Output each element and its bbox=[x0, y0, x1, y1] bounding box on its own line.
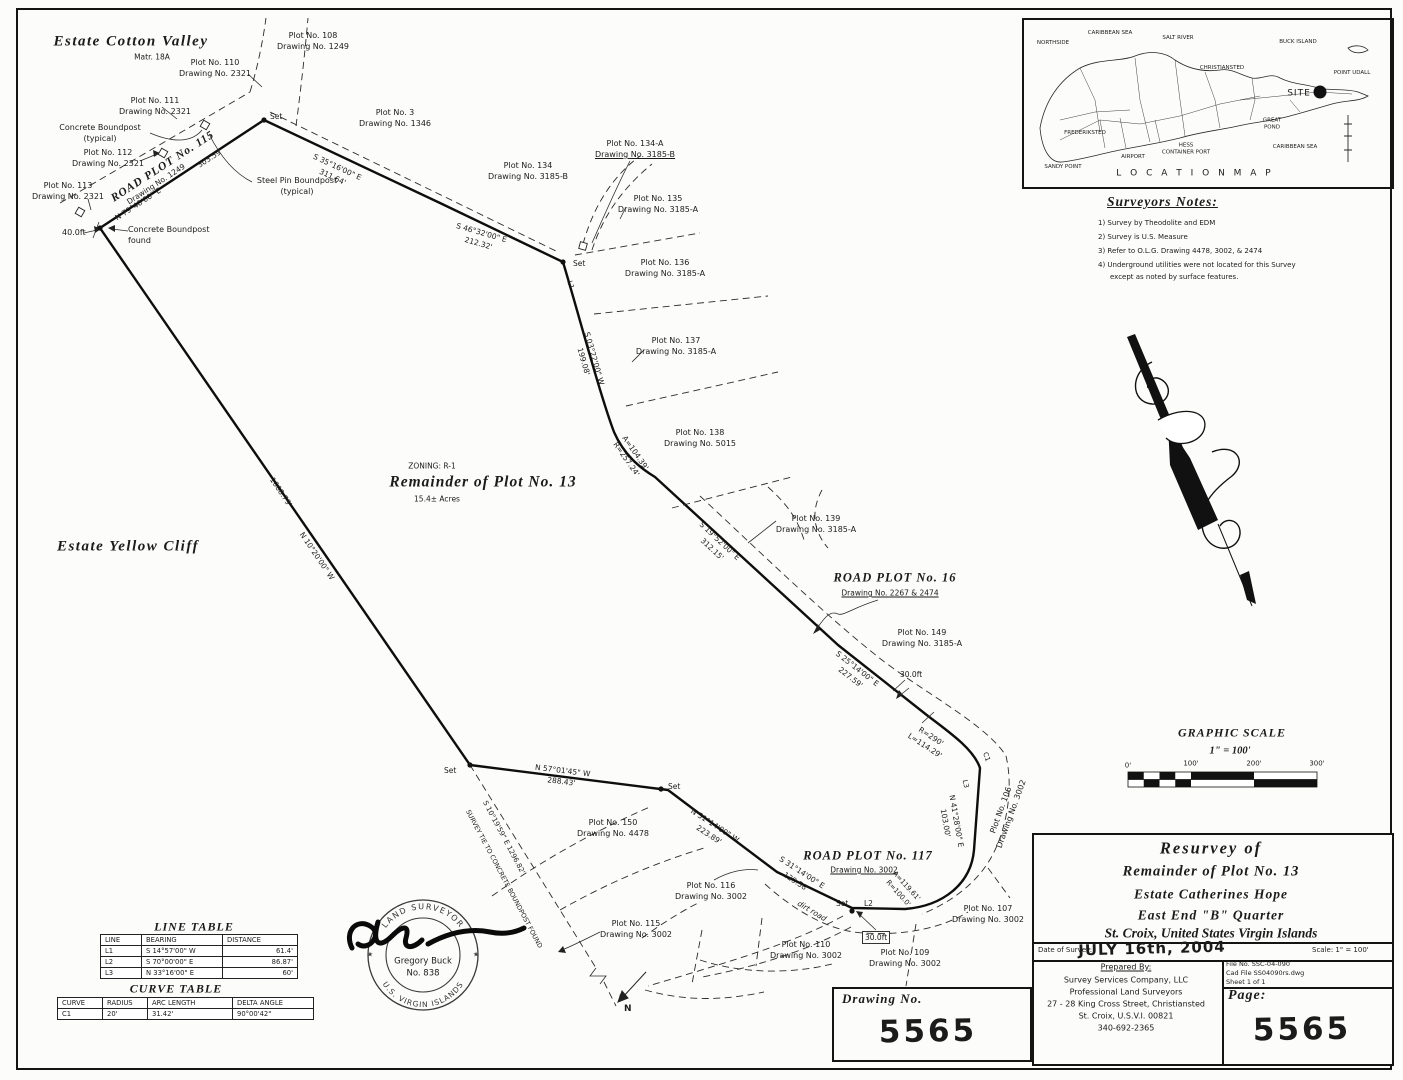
location-map-title: L O C A T I O N M A P bbox=[1116, 169, 1273, 180]
stamp-arc-top: LAND SURVEYOR bbox=[380, 902, 466, 930]
curve-table-header-delta: DELTA ANGLE bbox=[233, 998, 314, 1009]
title-line-5: St. Croix, United States Virgin Islands bbox=[1105, 928, 1318, 939]
estate-cotton-valley-matr: Matr. 18A bbox=[134, 52, 170, 63]
road-16-name: ROAD PLOT No. 16 bbox=[834, 573, 957, 584]
parcel-zoning: ZONING: R-1 bbox=[408, 461, 456, 472]
stamp-license-number: No. 838 bbox=[406, 969, 439, 980]
plot-label-116: Plot No. 116Drawing No. 3002 bbox=[675, 880, 747, 902]
curve-table-row: C120'31.42'90°00'42" bbox=[58, 1009, 314, 1020]
curve-table-title: CURVE TABLE bbox=[130, 984, 222, 995]
concrete-boundpost-found-callout: Concrete Boundpostfound bbox=[128, 224, 209, 246]
set-label-4: Set bbox=[668, 781, 680, 792]
curve-table-header-arc: ARC LENGTH bbox=[148, 998, 233, 1009]
set-label-3: Set bbox=[444, 765, 456, 776]
road-16-drawing: Drawing No. 2267 & 2474 bbox=[841, 588, 938, 599]
plot-label-115: Plot No. 115Drawing No. 3002 bbox=[600, 918, 672, 940]
file-number: File No. SSC-04-090 bbox=[1226, 960, 1290, 969]
plot-label-109: Plot No. 109Drawing No. 3002 bbox=[869, 947, 941, 969]
map-label-northside: NORTHSIDE bbox=[1037, 40, 1069, 47]
surveyors-note-4b: except as noted by surface features. bbox=[1110, 272, 1238, 283]
scale-tick-0: 0' bbox=[1125, 761, 1131, 772]
line-l2-label: L2 bbox=[864, 898, 873, 909]
line-table-row: L2S 70°00'00" E86.87' bbox=[101, 957, 298, 968]
concrete-boundpost-callout: Concrete Boundpost(typical) bbox=[59, 122, 140, 144]
plot-label-112: Plot No. 112Drawing No. 2321 bbox=[72, 147, 144, 169]
road-117-drawing: Drawing No. 3002 bbox=[830, 865, 898, 876]
prepared-by-profession: Professional Land Surveyors bbox=[1070, 987, 1183, 998]
survey-plat-sheet: LAND SURVEYOR U.S. VIRGIN ISLANDS bbox=[0, 0, 1403, 1080]
curve-table-header-radius: RADIUS bbox=[103, 998, 148, 1009]
offset-40ft: 40.0ft bbox=[62, 227, 86, 238]
svg-text:U.S. VIRGIN ISLANDS: U.S. VIRGIN ISLANDS bbox=[381, 980, 466, 1009]
surveyors-note-3: 3) Refer to O.L.G. Drawing 4478, 3002, &… bbox=[1098, 246, 1262, 257]
parcel-title: Remainder of Plot No. 13 bbox=[389, 477, 576, 488]
ornate-north-arrow bbox=[1127, 334, 1256, 606]
surveyor-stamp: LAND SURVEYOR U.S. VIRGIN ISLANDS bbox=[349, 900, 524, 1010]
plot-label-137: Plot No. 137Drawing No. 3185-A bbox=[636, 335, 716, 357]
svg-text:LAND SURVEYOR: LAND SURVEYOR bbox=[380, 902, 466, 930]
stamp-surveyor-name: Gregory Buck bbox=[394, 957, 452, 968]
scale-tick-100: 100' bbox=[1183, 759, 1198, 770]
plot-label-110-bottom: Plot No. 110Drawing No. 3002 bbox=[770, 939, 842, 961]
title-line-3: Estate Catherines Hope bbox=[1134, 889, 1288, 900]
plot-label-107: Plot No. 107Drawing No. 3002 bbox=[952, 903, 1024, 925]
signature-stroke bbox=[349, 922, 524, 948]
map-label-salt-river: SALT RIVER bbox=[1162, 35, 1193, 42]
road-117-name: ROAD PLOT No. 117 bbox=[803, 851, 933, 862]
plot-label-135: Plot No. 135Drawing No. 3185-A bbox=[618, 193, 698, 215]
map-label-christiansted: CHRISTIANSTED bbox=[1200, 65, 1244, 72]
surveyors-note-1: 1) Survey by Theodolite and EDM bbox=[1098, 218, 1215, 229]
title-line-2: Remainder of Plot No. 13 bbox=[1123, 867, 1300, 878]
graphic-scale-bar bbox=[1128, 772, 1317, 787]
plot-label-134a: Plot No. 134-ADrawing No. 3185-B bbox=[595, 138, 675, 160]
scale-tick-200: 200' bbox=[1246, 759, 1261, 770]
north-letter: N bbox=[624, 1004, 632, 1015]
drawing-number-label: Drawing No. bbox=[842, 993, 922, 1004]
line-table-row: L1S 14°57'00" W61.4' bbox=[101, 946, 298, 957]
map-label-sandy-point: SANDY POINT bbox=[1044, 164, 1081, 171]
offset-30ft-top: 30.0ft bbox=[900, 669, 922, 680]
map-label-caribbean-north: CARIBBEAN SEA bbox=[1088, 30, 1132, 37]
title-block-scale: Scale: 1" = 100' bbox=[1312, 945, 1369, 956]
plot-label-138: Plot No. 138Drawing No. 5015 bbox=[664, 427, 736, 449]
title-block-divider-v bbox=[1222, 960, 1224, 1064]
plot-label-139: Plot No. 139Drawing No. 3185-A bbox=[776, 513, 856, 535]
line-table-header-distance: DISTANCE bbox=[223, 935, 298, 946]
offset-30ft-bottom: 30.0ft bbox=[862, 931, 890, 944]
map-label-hess: HESSCONTAINER PORT bbox=[1162, 143, 1210, 156]
prepared-by-phone: 340-692-2365 bbox=[1098, 1023, 1155, 1034]
line-table-header-line: LINE bbox=[101, 935, 142, 946]
page-value: 5565 bbox=[1253, 1024, 1351, 1037]
map-label-great-pond: GREATPOND bbox=[1263, 118, 1281, 131]
plot-label-3: Plot No. 3Drawing No. 1346 bbox=[359, 107, 431, 129]
prepared-by-address1: 27 - 28 King Cross Street, Christiansted bbox=[1047, 999, 1205, 1010]
sheet-number: Sheet 1 of 1 bbox=[1226, 978, 1266, 987]
graphic-scale-title: GRAPHIC SCALE bbox=[1178, 728, 1286, 739]
parcel-area: 15.4± Acres bbox=[414, 494, 460, 505]
prepared-by-address2: St. Croix, U.S.V.I. 00821 bbox=[1079, 1011, 1174, 1022]
small-north-arrow bbox=[618, 972, 646, 1002]
plot-label-134: Plot No. 134Drawing No. 3185-B bbox=[488, 160, 568, 182]
map-label-buck-island: BUCK ISLAND bbox=[1279, 39, 1316, 46]
map-label-frederiksted: FREDERIKSTED bbox=[1064, 130, 1106, 137]
surveyors-note-2: 2) Survey is U.S. Measure bbox=[1098, 232, 1188, 243]
surveyors-notes-title: Surveyors Notes: bbox=[1107, 196, 1218, 207]
title-line-4: East End "B" Quarter bbox=[1138, 910, 1284, 921]
title-line-1: Resurvey of bbox=[1160, 843, 1262, 854]
plot-label-149: Plot No. 149Drawing No. 3185-A bbox=[882, 627, 962, 649]
map-label-site: SITE bbox=[1287, 89, 1311, 100]
stamp-arc-bottom: U.S. VIRGIN ISLANDS bbox=[381, 980, 466, 1009]
line-table-row: L3N 33°16'00" E60' bbox=[101, 968, 298, 979]
drawing-number-value: 5565 bbox=[879, 1026, 977, 1039]
line-table-title: LINE TABLE bbox=[154, 922, 234, 933]
plot-label-113: Plot No. 113Drawing No. 2321 bbox=[32, 180, 104, 202]
set-label-2: Set bbox=[573, 258, 585, 269]
plot-label-108: Plot No. 108Drawing No. 1249 bbox=[277, 30, 349, 52]
line-table-header-bearing: BEARING bbox=[142, 935, 223, 946]
title-block-divider-2 bbox=[1034, 960, 1392, 962]
plot-label-136: Plot No. 136Drawing No. 3185-A bbox=[625, 257, 705, 279]
plot-label-110-top: Plot No. 110Drawing No. 2321 bbox=[179, 57, 251, 79]
prepared-by-label: Prepared By: bbox=[1101, 962, 1152, 973]
estate-cotton-valley-label: Estate Cotton Valley bbox=[53, 37, 208, 48]
plot-label-111: Plot No. 111Drawing No. 2321 bbox=[119, 95, 191, 117]
prepared-by-company: Survey Services Company, LLC bbox=[1064, 975, 1188, 986]
plot-label-150: Plot No. 150Drawing No. 4478 bbox=[577, 817, 649, 839]
map-label-point-udall: POINT UDALL bbox=[1334, 70, 1371, 77]
cad-file: Cad File SS04090rs.dwg bbox=[1226, 969, 1304, 978]
page-label: Page: bbox=[1228, 990, 1266, 1001]
date-of-survey-value: JULY 16th, 2004 bbox=[1078, 942, 1226, 957]
stamp-star-right: ★ bbox=[473, 950, 479, 961]
stamp-star-left: ★ bbox=[367, 950, 373, 961]
estate-yellow-cliff-label: Estate Yellow Cliff bbox=[57, 542, 199, 553]
set-label-5: Set bbox=[836, 898, 848, 909]
line-table: LINE BEARING DISTANCE L1S 14°57'00" W61.… bbox=[100, 934, 298, 979]
set-label-1: Set bbox=[270, 111, 282, 122]
scale-tick-300: 300' bbox=[1309, 759, 1324, 770]
surveyors-note-4: 4) Underground utilities were not locate… bbox=[1098, 260, 1296, 271]
graphic-scale-ratio: 1" = 100' bbox=[1210, 746, 1251, 757]
curve-table-header-curve: CURVE bbox=[58, 998, 103, 1009]
curve-table: CURVE RADIUS ARC LENGTH DELTA ANGLE C120… bbox=[57, 997, 314, 1020]
map-label-airport: AIRPORT bbox=[1121, 154, 1145, 161]
map-label-caribbean-south: CARIBBEAN SEA bbox=[1273, 144, 1317, 151]
